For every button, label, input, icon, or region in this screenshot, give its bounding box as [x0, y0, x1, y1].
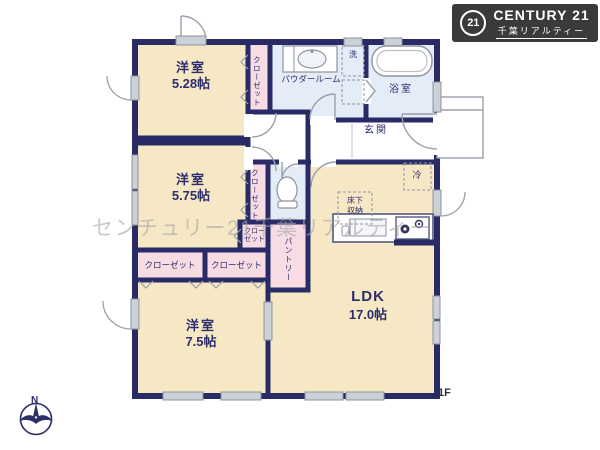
bedroom1-size: 5.28帖 [151, 76, 231, 92]
entrance-porch [437, 97, 483, 158]
bedroom2-name: 洋室 [151, 172, 231, 188]
bedroom3-name: 洋室 [161, 318, 241, 334]
closet-label-1: クローゼット [252, 53, 261, 109]
logo-subtitle: 千葉リアルティー [496, 23, 587, 39]
bedroom2-label: 洋室 5.75帖 [151, 172, 231, 205]
toilet-icon [277, 177, 297, 208]
compass-north-label: N [31, 395, 38, 406]
bathroom-label: 浴室 [381, 84, 421, 97]
closet-label-5: クローゼット [207, 260, 266, 271]
bathtub-icon [372, 46, 432, 76]
logo-text-block: CENTURY 21 千葉リアルティー [493, 7, 589, 39]
washer-label: 洗 [345, 50, 361, 60]
compass-icon [19, 403, 53, 435]
ldk-size: 17.0帖 [328, 307, 408, 323]
bedroom1-name: 洋室 [151, 60, 231, 76]
bedroom3-label: 洋室 7.5帖 [161, 318, 241, 351]
sink-icon [283, 46, 337, 72]
bedroom1-label: 洋室 5.28帖 [151, 60, 231, 93]
underfloor-line1: 床下 [339, 196, 371, 206]
refrigerator-label: 冷 [409, 170, 425, 181]
entrance-label: 玄関 [356, 125, 396, 138]
logo-21-badge-icon: 21 [460, 10, 486, 36]
watermark-text: センチュリー21千葉リアルティー [92, 212, 432, 242]
powder-room-label: パウダールーム [274, 74, 348, 85]
closet-label-4: クローゼット [137, 260, 203, 271]
bedroom3-size: 7.5帖 [161, 334, 241, 350]
ldk-label: LDK 17.0帖 [328, 288, 408, 323]
floor-plan-page: 洋室 5.28帖 洋室 5.75帖 洋室 7.5帖 LDK 17.0帖 パウダー… [0, 0, 600, 450]
logo-name: CENTURY 21 [493, 7, 589, 23]
exterior-door-top [176, 16, 206, 45]
bedroom2-size: 5.75帖 [151, 188, 231, 204]
floor-label: 1F [438, 387, 451, 399]
ldk-name: LDK [328, 288, 408, 307]
century21-logo: 21 CENTURY 21 千葉リアルティー [452, 4, 598, 42]
